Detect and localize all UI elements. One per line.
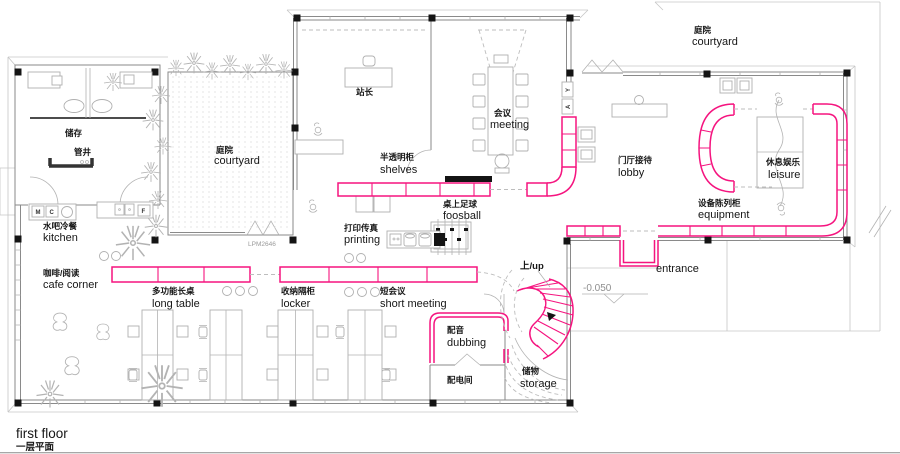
label-leisure-zh: 休息娱乐 bbox=[765, 157, 801, 167]
label-equipment-zh: 设备陈列柜 bbox=[698, 198, 741, 208]
label-long-table-zh: 多功能长桌 bbox=[152, 286, 195, 296]
courtyard-left: 庭院 courtyard LPM2646 bbox=[141, 53, 292, 248]
manager-chair bbox=[363, 56, 375, 66]
copier-black-box bbox=[434, 233, 445, 246]
label-printing-zh: 打印传真 bbox=[344, 223, 379, 233]
manager-desk bbox=[345, 68, 392, 87]
projection-screen bbox=[494, 55, 508, 63]
armchair-2 bbox=[578, 147, 595, 162]
level-mark-symbol bbox=[582, 294, 648, 303]
label-leisure-en: leisure bbox=[768, 169, 800, 181]
shelf-strip-vertical bbox=[562, 117, 576, 167]
shelf-row-2 bbox=[527, 183, 547, 196]
label-storage-zh: 储物 bbox=[521, 366, 540, 376]
label-lobby-zh: 门厅接待 bbox=[618, 155, 653, 165]
equipment-left-ticks bbox=[699, 130, 711, 166]
armchair-1 bbox=[578, 127, 595, 142]
label-equipment-en: equipment bbox=[698, 209, 749, 221]
label-entrance: entrance bbox=[656, 263, 699, 275]
label-locker-en: locker bbox=[281, 298, 311, 310]
long-table-row-1 bbox=[112, 267, 250, 282]
stool-table-1 bbox=[720, 78, 735, 93]
label-meeting-zh: 会议 bbox=[493, 108, 512, 118]
appliance-letter-y: Y bbox=[566, 88, 572, 92]
drawing-title: first floor 一层平面 bbox=[0, 426, 900, 453]
basin-right bbox=[124, 75, 134, 84]
window-code: LPM2646 bbox=[248, 241, 276, 248]
reception-desk bbox=[295, 140, 343, 154]
label-short-meeting-zh: 短会议 bbox=[380, 286, 406, 296]
leisure-person-top bbox=[775, 93, 783, 105]
floor-plan-drawing: 储存 管井 庭院 courtyard LPM2646 bbox=[0, 0, 900, 454]
stair-treads bbox=[520, 280, 573, 356]
label-storage-en: storage bbox=[520, 378, 557, 390]
label-shaft-zh: 管井 bbox=[74, 147, 92, 157]
lobby-counter bbox=[612, 104, 667, 117]
label-station-master-zh: 站长 bbox=[356, 87, 374, 97]
toilet-right bbox=[92, 100, 112, 113]
label-printing-en: printing bbox=[344, 234, 380, 246]
washroom-block: 储存 管井 bbox=[28, 68, 152, 166]
stair-inner-stringer bbox=[517, 288, 546, 347]
shelf-row bbox=[338, 183, 490, 196]
fixture-letter-f: F bbox=[142, 209, 146, 215]
shaft-pipe-2 bbox=[86, 161, 89, 164]
long-table-zone: 多功能长桌 long table 收纳隔柜 locker 短会议 short m… bbox=[112, 254, 514, 311]
fixture-letter-m: M bbox=[36, 210, 41, 216]
label-courtyard-left-en: courtyard bbox=[214, 155, 260, 167]
stair-direction-arrow bbox=[547, 312, 556, 321]
shelf-cabinets: 半透明柜 shelves bbox=[338, 117, 576, 196]
label-foosball-zh: 桌上足球 bbox=[442, 199, 478, 209]
person-figure bbox=[314, 123, 322, 135]
basin-left bbox=[52, 76, 62, 85]
label-store-zh: 储存 bbox=[64, 128, 83, 138]
label-kitchen-zh: 水吧冷餐 bbox=[42, 221, 78, 231]
palm-plant-icon bbox=[116, 226, 150, 260]
appliance-letter-a: A bbox=[566, 104, 572, 109]
fixture-letter-c: C bbox=[50, 210, 55, 216]
stair-outer-stringer bbox=[543, 279, 573, 359]
cafe-person bbox=[309, 200, 317, 212]
label-short-meeting-en: short meeting bbox=[380, 298, 447, 310]
title-chinese: 一层平面 bbox=[16, 442, 55, 453]
pipe-shaft bbox=[49, 158, 93, 166]
label-dubbing-en: dubbing bbox=[447, 337, 486, 349]
stool-table-2 bbox=[737, 78, 752, 93]
lobby-person-head bbox=[635, 96, 644, 105]
dark-counter-bar bbox=[445, 176, 492, 182]
label-dubbing-zh: 配音 bbox=[447, 325, 465, 335]
floor-plan-page: 储存 管井 庭院 courtyard LPM2646 bbox=[0, 0, 900, 454]
entrance-recess bbox=[620, 240, 658, 266]
entrance-zone: entrance -0.050 bbox=[582, 240, 699, 303]
title-english: first floor bbox=[16, 426, 68, 441]
label-stair-up: 上/up bbox=[520, 260, 544, 272]
table-to-stair-dashed bbox=[477, 272, 514, 291]
label-foosball-en: foosball bbox=[443, 210, 481, 222]
desk-clusters bbox=[142, 310, 382, 400]
label-long-table-en: long table bbox=[152, 298, 200, 310]
label-lobby-en: lobby bbox=[618, 167, 645, 179]
spiral-stair: 上/up bbox=[500, 260, 573, 359]
label-kitchen-en: kitchen bbox=[43, 232, 78, 244]
leisure-play-path bbox=[775, 100, 783, 206]
stall-partitions bbox=[86, 68, 90, 118]
equipment-row-left bbox=[567, 226, 620, 236]
shaft-pipe-1 bbox=[81, 161, 84, 164]
label-cafe-zh: 咖啡/阅读 bbox=[43, 268, 80, 278]
label-courtyard-right-zh: 庭院 bbox=[694, 25, 712, 35]
plant-icon bbox=[104, 73, 122, 91]
meeting-room: 会议 meeting Y A bbox=[473, 30, 573, 173]
level-mark-text: -0.050 bbox=[583, 283, 612, 294]
right-wing: 庭院 courtyard 门厅接待 lobby 休息娱乐 leisure 设备陈… bbox=[567, 25, 847, 236]
toilet-left bbox=[64, 100, 84, 113]
label-locker-zh: 收纳隔柜 bbox=[281, 286, 316, 296]
label-meeting-en: meeting bbox=[490, 119, 529, 131]
label-courtyard-left-zh: 庭院 bbox=[216, 145, 234, 155]
label-shelves-en: shelves bbox=[380, 164, 418, 176]
task-chairs bbox=[129, 326, 390, 382]
label-courtyard-right-en: courtyard bbox=[692, 36, 738, 48]
up-leader-line bbox=[538, 271, 550, 287]
label-cafe-en: cafe corner bbox=[43, 279, 98, 291]
equipment-cabinet-right bbox=[658, 104, 847, 236]
shelf-corner-arc bbox=[547, 167, 576, 196]
desk-side-units bbox=[128, 326, 396, 380]
label-electrical-zh: 配电间 bbox=[447, 375, 473, 385]
label-shelves-zh: 半透明柜 bbox=[380, 152, 415, 162]
